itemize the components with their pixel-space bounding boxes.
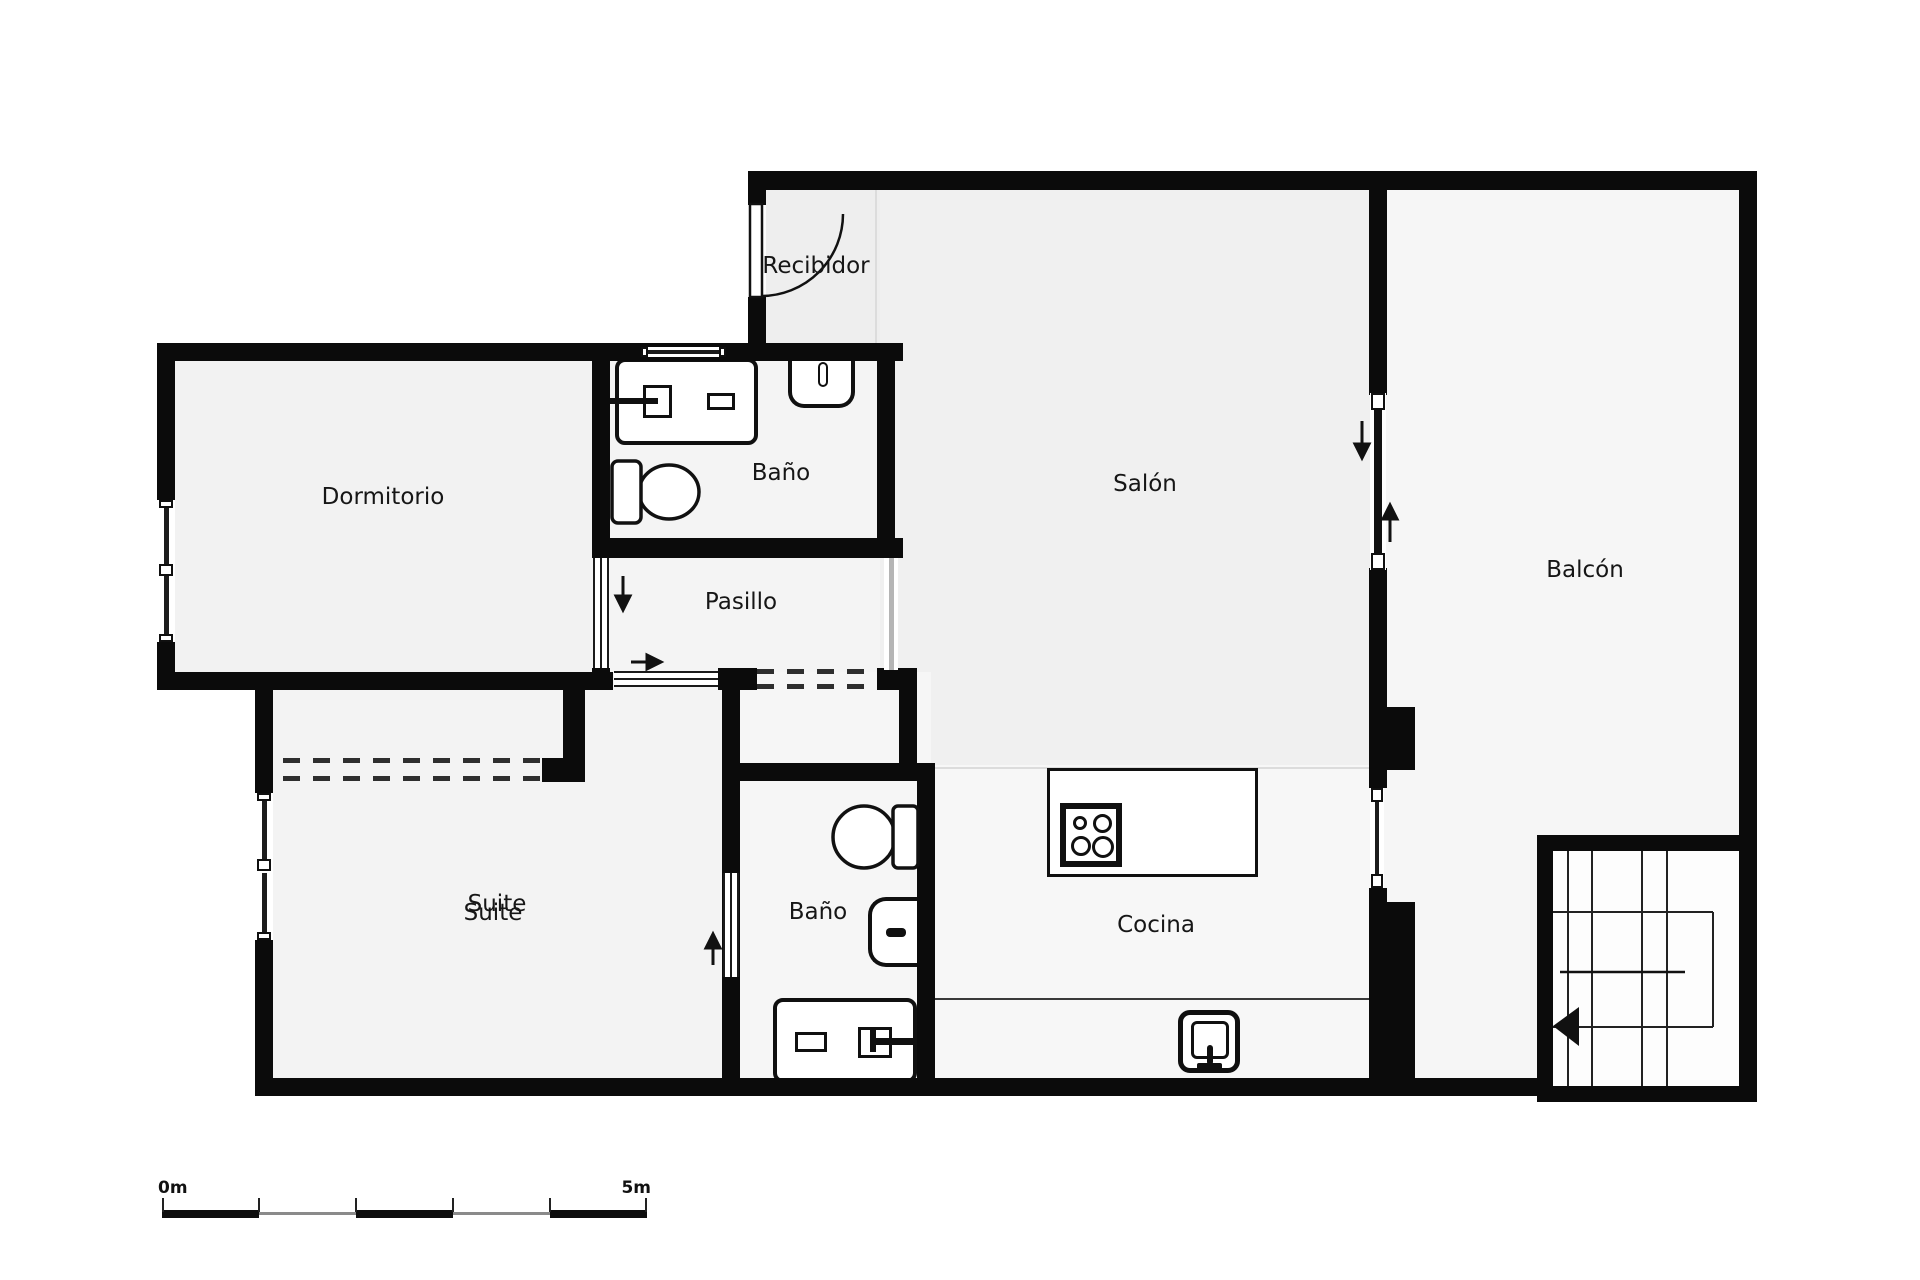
arrow-down-salon-balcony bbox=[1355, 421, 1369, 458]
arrow-right-pasillo bbox=[631, 655, 661, 669]
scale-tick bbox=[645, 1198, 647, 1212]
stairs-direction-arrow bbox=[1553, 1007, 1579, 1046]
arrow-down-pasillo bbox=[616, 576, 630, 610]
scale-tick bbox=[258, 1198, 260, 1212]
scale-tick bbox=[355, 1198, 357, 1212]
toilet-bottom-bath bbox=[833, 806, 918, 868]
scale-bar: 0m 5m bbox=[162, 1196, 647, 1218]
scale-seg-3 bbox=[356, 1210, 453, 1218]
room-label-cocina: Cocina bbox=[1117, 912, 1195, 938]
floorplan: Recibidor Dormitorio Baño Pasillo Salón … bbox=[0, 0, 1920, 1280]
plan-symbols bbox=[0, 0, 1920, 1280]
room-label-bano-top: Baño bbox=[752, 460, 811, 486]
room-label-recibidor: Recibidor bbox=[762, 253, 869, 279]
scale-seg-5 bbox=[550, 1210, 647, 1218]
entry-door-swing bbox=[750, 204, 843, 297]
arrow-up-balcony bbox=[1383, 505, 1397, 542]
staircase-treads bbox=[1553, 851, 1713, 1086]
scale-tick bbox=[549, 1198, 551, 1212]
scale-tick bbox=[452, 1198, 454, 1212]
toilet-top-bath bbox=[612, 461, 699, 523]
room-label-dormitorio: Dormitorio bbox=[322, 484, 445, 510]
scale-seg-4 bbox=[453, 1212, 550, 1215]
scale-label-0m: 0m bbox=[158, 1178, 188, 1198]
room-label-salon: Salón bbox=[1113, 471, 1177, 497]
arrow-up-suite-bath bbox=[706, 934, 720, 965]
room-label-balcon: Balcón bbox=[1546, 557, 1624, 583]
scale-label-5m: 5m bbox=[621, 1178, 651, 1198]
room-label-suite-shadow: Suite bbox=[464, 900, 523, 926]
room-label-pasillo: Pasillo bbox=[705, 589, 777, 615]
room-label-bano-bottom: Baño bbox=[789, 899, 848, 925]
scale-seg-2 bbox=[259, 1212, 356, 1215]
scale-seg-1 bbox=[162, 1210, 259, 1218]
scale-tick bbox=[162, 1198, 164, 1212]
